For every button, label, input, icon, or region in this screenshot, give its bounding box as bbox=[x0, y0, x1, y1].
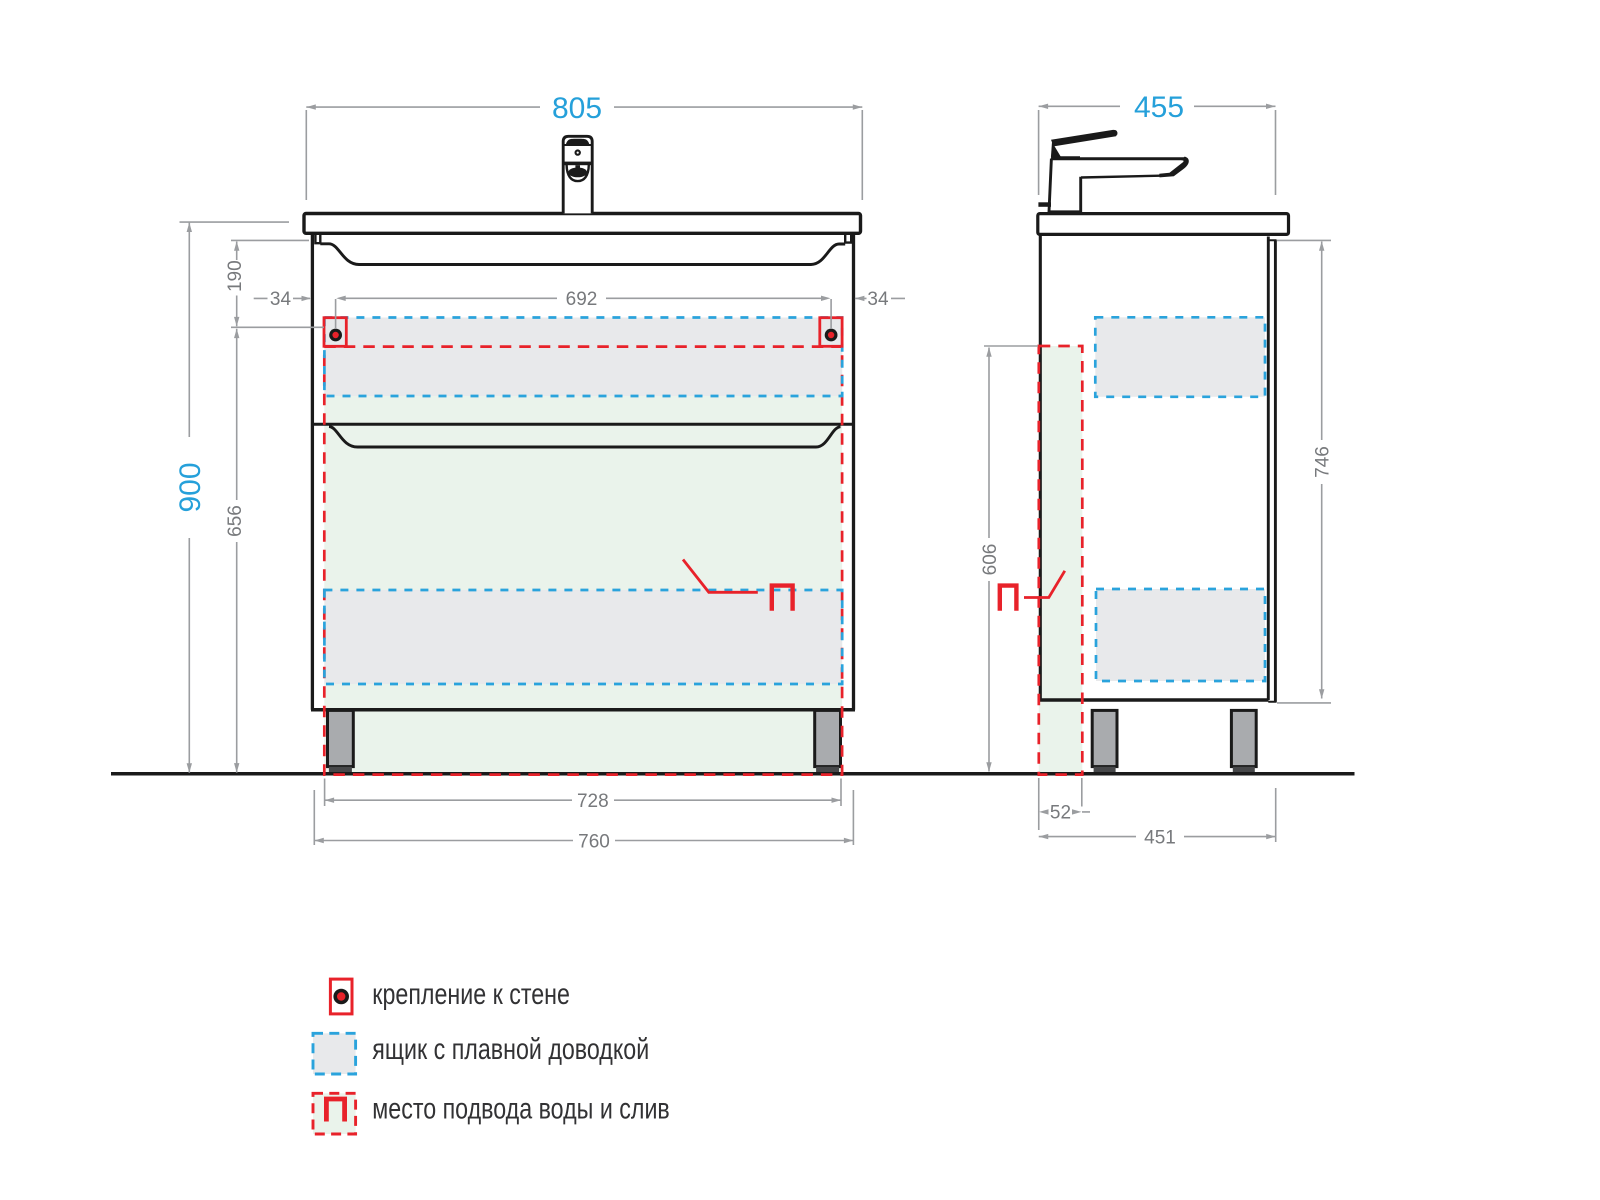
svg-text:606: 606 bbox=[980, 544, 1001, 576]
svg-text:34: 34 bbox=[270, 289, 292, 310]
svg-text:900: 900 bbox=[174, 462, 207, 512]
svg-text:ящик с плавной доводкой: ящик с плавной доводкой bbox=[372, 1032, 649, 1066]
svg-text:455: 455 bbox=[1134, 91, 1184, 124]
svg-text:место подвода воды и слив: место подвода воды и слив bbox=[372, 1092, 669, 1126]
svg-text:805: 805 bbox=[552, 92, 602, 125]
svg-text:728: 728 bbox=[577, 791, 609, 812]
svg-text:692: 692 bbox=[566, 289, 598, 310]
svg-text:крепление к стене: крепление к стене bbox=[372, 977, 570, 1011]
svg-text:746: 746 bbox=[1313, 446, 1334, 478]
svg-text:656: 656 bbox=[225, 505, 246, 537]
svg-text:190: 190 bbox=[225, 260, 246, 292]
svg-text:34: 34 bbox=[867, 289, 889, 310]
svg-text:760: 760 bbox=[578, 831, 610, 852]
svg-text:451: 451 bbox=[1144, 827, 1176, 848]
svg-text:52: 52 bbox=[1050, 803, 1071, 824]
